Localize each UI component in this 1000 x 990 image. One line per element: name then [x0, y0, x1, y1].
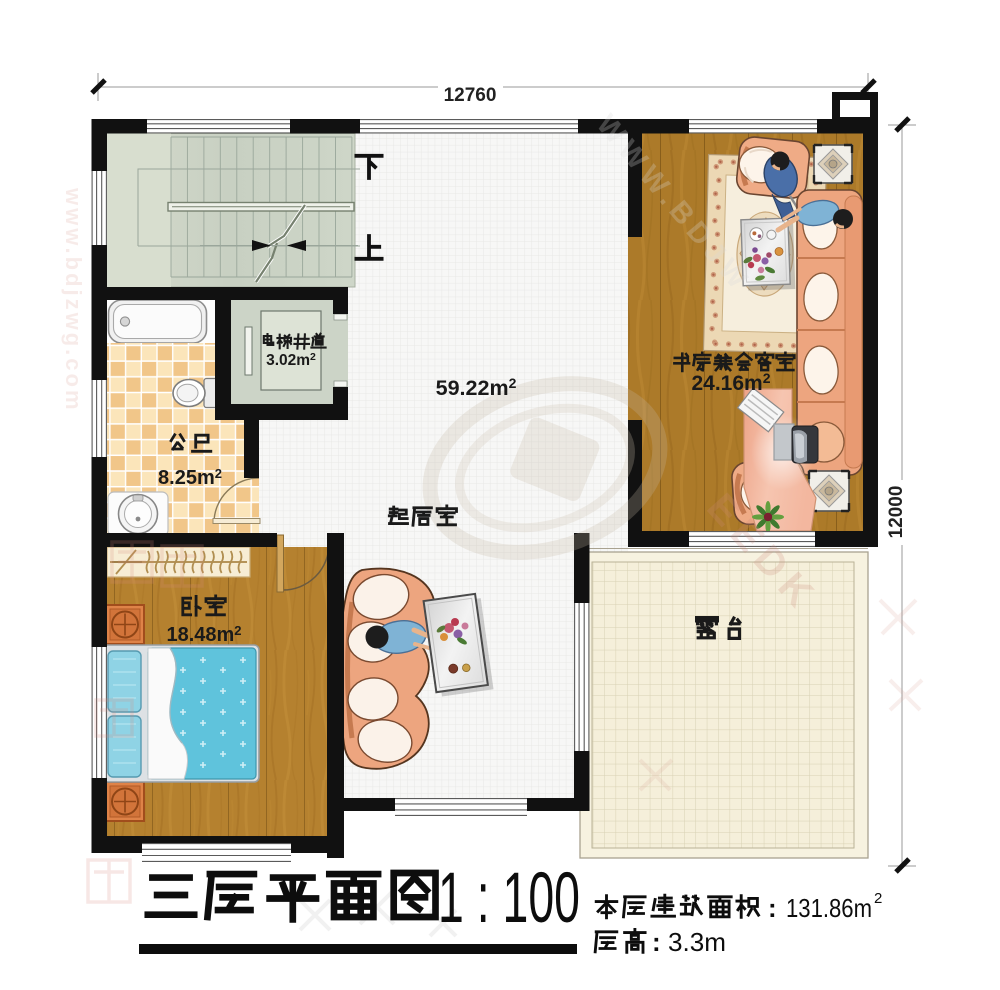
svg-text:1 : 100: 1 : 100: [438, 859, 580, 938]
svg-text:3.3m: 3.3m: [668, 927, 726, 957]
svg-text:3.02m2: 3.02m2: [266, 351, 316, 369]
svg-text:59.22m2: 59.22m2: [436, 375, 517, 400]
svg-text:18.48m2: 18.48m2: [166, 623, 241, 646]
svg-text:24.16m2: 24.16m2: [691, 370, 770, 395]
svg-text::: :: [768, 893, 777, 923]
svg-text:8.25m2: 8.25m2: [158, 466, 222, 489]
svg-text:2: 2: [874, 890, 882, 907]
svg-text:131.86m: 131.86m: [786, 893, 872, 923]
svg-text::: :: [652, 927, 661, 957]
svg-text:12760: 12760: [444, 85, 497, 106]
svg-text:12000: 12000: [886, 486, 907, 539]
